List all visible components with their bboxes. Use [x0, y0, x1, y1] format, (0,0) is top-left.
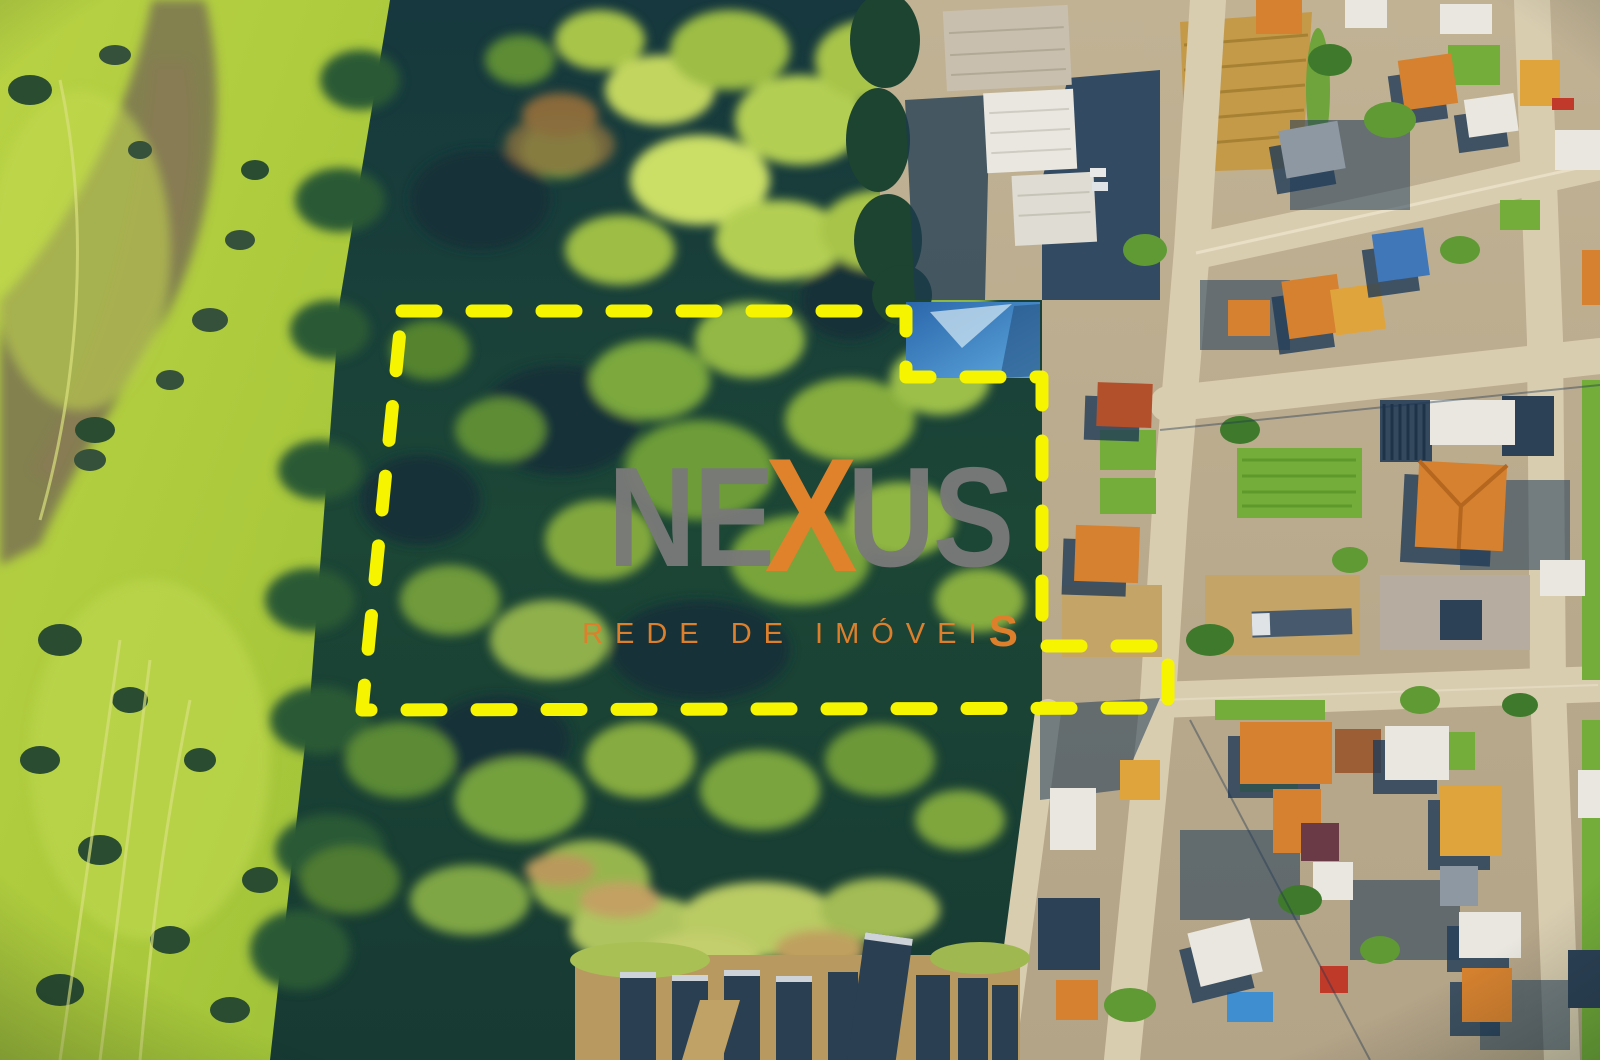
aerial-photo — [0, 0, 1600, 1060]
aerial-photo-stage: NEXUS REDE DE IMÓVEIS — [0, 0, 1600, 1060]
vignette — [0, 0, 1600, 1060]
